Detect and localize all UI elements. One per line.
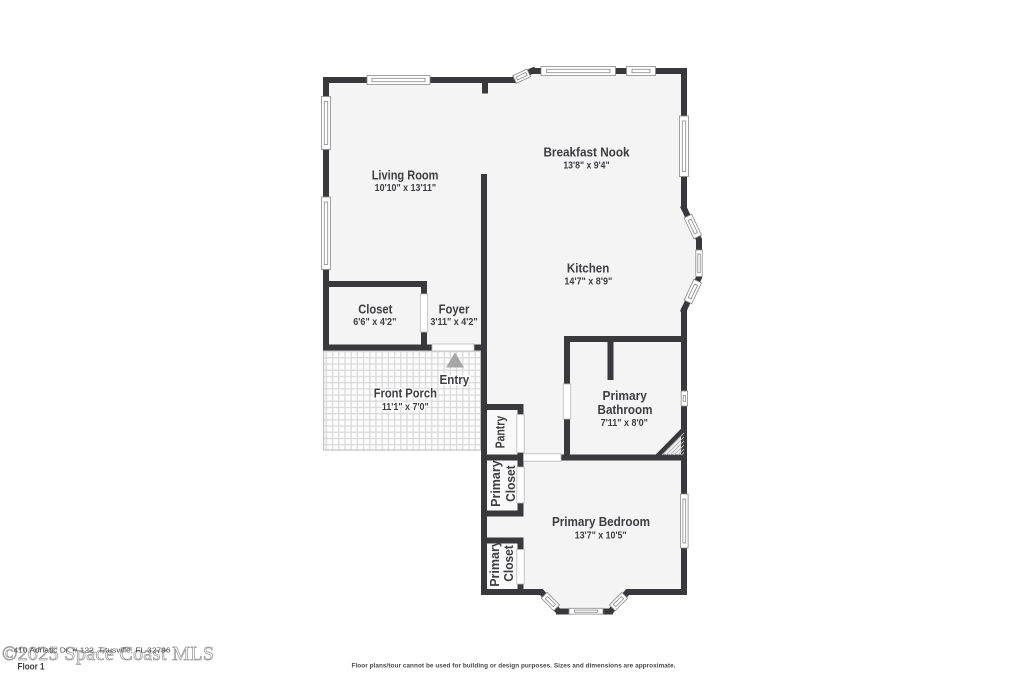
svg-text:Entry: Entry: [440, 372, 470, 387]
svg-text:Closet: Closet: [358, 302, 393, 317]
svg-text:10'10" x 13'11": 10'10" x 13'11": [375, 183, 437, 194]
svg-text:14'7" x 8'9": 14'7" x 8'9": [564, 276, 612, 287]
svg-text:Primary: Primary: [487, 539, 502, 586]
svg-text:Closet: Closet: [503, 465, 518, 502]
svg-text:Floor 1: Floor 1: [18, 662, 46, 673]
svg-text:Primary: Primary: [603, 388, 648, 403]
svg-text:Foyer: Foyer: [439, 302, 470, 317]
svg-text:410 Adriatic Dr. # 122, Titusv: 410 Adriatic Dr. # 122, Titusville, FL 3…: [14, 646, 171, 655]
svg-text:Primary: Primary: [488, 459, 503, 506]
svg-text:Bathroom: Bathroom: [598, 402, 653, 417]
svg-text:Living Room: Living Room: [372, 167, 439, 182]
svg-text:Front Porch: Front Porch: [374, 386, 437, 401]
svg-text:Floor plans/tour cannot be use: Floor plans/tour cannot be used for buil…: [352, 662, 676, 669]
svg-text:6'6" x 4'2": 6'6" x 4'2": [353, 317, 396, 328]
svg-text:Pantry: Pantry: [493, 415, 508, 448]
svg-text:11'1" x 7'0": 11'1" x 7'0": [382, 402, 429, 413]
svg-text:3'11" x 4'2": 3'11" x 4'2": [430, 317, 477, 328]
svg-text:Breakfast Nook: Breakfast Nook: [543, 144, 630, 159]
svg-text:Primary Bedroom: Primary Bedroom: [552, 514, 650, 529]
svg-text:Closet: Closet: [501, 545, 516, 582]
svg-text:13'7" x 10'5": 13'7" x 10'5": [575, 531, 627, 542]
svg-text:Kitchen: Kitchen: [567, 261, 610, 276]
svg-text:13'8" x 9'4": 13'8" x 9'4": [563, 160, 609, 171]
svg-text:7'11" x 8'0": 7'11" x 8'0": [601, 418, 648, 429]
